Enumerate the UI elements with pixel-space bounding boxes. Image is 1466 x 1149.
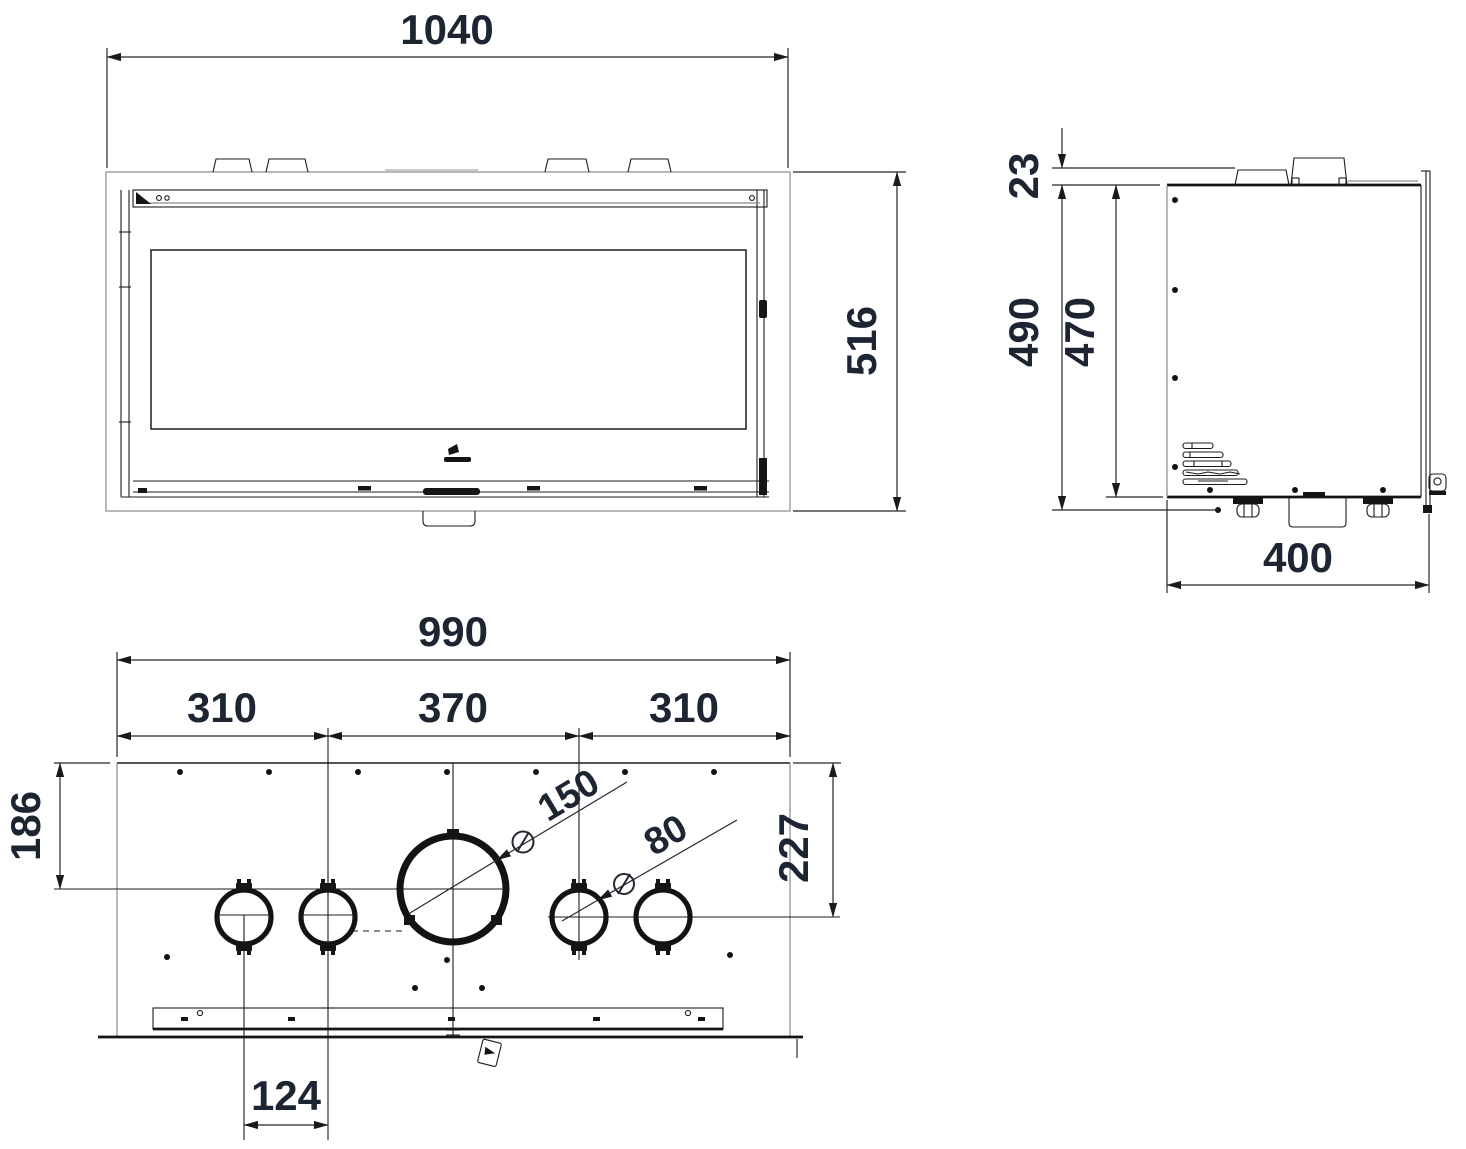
dim-top-width: 990 — [418, 608, 488, 655]
dim-front-width: 1040 — [400, 6, 493, 53]
dim-middle-section: 370 — [418, 684, 488, 731]
latch-stripe — [759, 458, 767, 495]
door-hinge-mark — [136, 192, 151, 204]
dim-duct-offset: 227 — [770, 813, 817, 883]
dim-duct-spacing: 124 — [251, 1072, 322, 1119]
door-latch — [1429, 474, 1446, 495]
dim-flue-offset: 186 — [2, 791, 49, 861]
dim-overall-height: 490 — [1000, 297, 1047, 367]
screw-icon — [165, 196, 169, 200]
collar-clip — [447, 829, 459, 839]
dim-body-height: 470 — [1056, 297, 1103, 367]
rivet — [1380, 487, 1386, 493]
bottom-junction-box — [1289, 497, 1346, 527]
screw-icon — [157, 196, 162, 201]
rivet — [1207, 487, 1213, 493]
rivet — [412, 985, 418, 991]
rivet — [1172, 375, 1178, 381]
brand-logo — [444, 444, 471, 462]
plate-mark — [181, 1017, 188, 1021]
rivet — [479, 985, 485, 991]
cable-gland-right — [1363, 497, 1393, 517]
diameter-symbol-icon — [614, 874, 634, 894]
rivet — [1292, 487, 1298, 493]
rivet — [711, 769, 717, 775]
handle-pivot — [759, 300, 767, 318]
plate-mark — [593, 1017, 600, 1021]
dim-left-section: 310 — [187, 684, 257, 731]
collar-clip — [491, 915, 502, 925]
bottom-port-mark — [1303, 492, 1325, 497]
air-vent-mark — [527, 486, 540, 491]
hanging-tag — [477, 1039, 501, 1067]
leader-duct-diameter: 80 — [562, 807, 737, 921]
dim-front-height: 516 — [838, 306, 885, 376]
plate-mark — [448, 1017, 455, 1021]
top-view — [54, 728, 840, 1140]
rivet — [444, 957, 450, 963]
front-dimensions: 1040 516 — [107, 6, 906, 511]
dim-bracket-height: 23 — [1000, 153, 1047, 200]
front-top-tab-2 — [266, 159, 308, 172]
front-top-tab-4 — [628, 159, 671, 172]
plate-screw — [685, 1010, 690, 1015]
diameter-symbol-icon — [513, 832, 534, 853]
front-view — [106, 159, 790, 526]
rivet — [533, 769, 539, 775]
rivet — [164, 954, 170, 960]
front-bottom-tab — [423, 511, 475, 526]
screw-icon — [750, 196, 755, 201]
rivet — [622, 769, 628, 775]
top-dimensions: 990 310 370 310 186 227 124 150 — [2, 608, 841, 1125]
door-handle — [423, 488, 480, 495]
dim-depth: 400 — [1263, 534, 1333, 581]
rivet — [266, 769, 272, 775]
side-dimensions: 23 490 470 400 — [1000, 128, 1429, 593]
dim-duct-diameter: 80 — [637, 807, 695, 865]
side-tab-low — [1235, 170, 1289, 185]
vent-slots — [1183, 443, 1247, 485]
base-plate — [153, 1008, 723, 1029]
rivet — [1172, 197, 1178, 203]
plate-mark — [698, 1017, 705, 1021]
dim-right-section: 310 — [649, 684, 719, 731]
dim-flue-diameter: 150 — [531, 761, 607, 830]
air-vent-mark — [694, 486, 707, 491]
rivet — [177, 769, 183, 775]
door-top-bar — [133, 190, 767, 207]
front-top-tab-3 — [545, 159, 589, 172]
door-glass — [151, 250, 746, 429]
rivet — [727, 952, 733, 958]
rivet — [1172, 287, 1178, 293]
plate-screw — [197, 1010, 202, 1015]
cable-gland-left — [1233, 497, 1263, 517]
flange-foot — [1423, 505, 1432, 513]
side-view — [1167, 158, 1446, 527]
plate-mark — [288, 1017, 295, 1021]
corner-mark — [138, 488, 147, 493]
air-vent-mark — [358, 486, 371, 491]
collar-clip — [404, 915, 415, 925]
front-top-tab-1 — [213, 159, 252, 172]
rivet — [1172, 464, 1178, 470]
rivet — [355, 769, 361, 775]
technical-drawing-page: 1040 516 — [0, 0, 1466, 1149]
rivet — [444, 769, 450, 775]
